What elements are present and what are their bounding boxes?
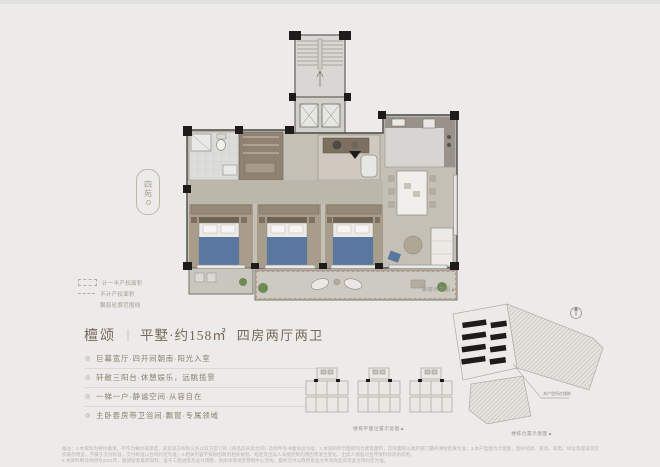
area-legend: 计一半产权面积 不计产权面积 飘窗轮廓范围线 [78,278,198,311]
key-plans-caption: 楼栋平面位置示意图▲ [303,425,455,432]
feature-item: ◎ 巨幕宽厅·四开间朝南·阳光入室 [85,350,323,369]
bathroom-1 [189,132,239,180]
unit-title: 檀颂 ｜ 平墅·约158㎡ 四房两厅两卫 [84,324,324,345]
key-plans: 楼栋平面位置示意图▲ [303,366,455,432]
feature-text: 轩敞三阳台·休憩娱乐，远眺揽景 [96,372,216,383]
bullet-icon: ◎ [85,412,91,419]
disclaimer: 备注：1.本资料为要约邀请，不作为要约或承诺，买卖双方权利义务以双方签订的《商品… [62,446,599,464]
disclaimer-line-1: 备注：1.本资料为要约邀请，不作为要约或承诺，买卖双方权利义务以双方签订的《商品… [62,446,599,458]
bedroom-2 [257,204,321,268]
north-arrow-icon [571,307,582,319]
floorplan [125,25,465,315]
legend-row-no-area: 不计产权面积 [78,289,198,298]
stair-tower [289,31,351,97]
bullet-icon: ◎ [85,393,91,400]
title-divider: ｜ [122,327,134,344]
feature-item: ◎ 主卧套房带卫浴间·飘窗·专属领域 [85,407,323,425]
balcony-main [255,270,457,300]
feature-list: ◎ 巨幕宽厅·四开间朝南·阳光入室 ◎ 轩敞三阳台·休憩娱乐，远眺揽景 ◎ 一梯… [85,350,323,425]
project-seal: 四 苑 [136,169,160,215]
feature-item: ◎ 一梯一户·静谧空间·从容自在 [85,388,323,407]
dashed-line-symbol [78,293,95,294]
key-plan-building-2 [358,368,400,412]
walkin-closet [239,132,283,180]
bullet-icon: ◎ [85,374,91,381]
corridor [189,180,383,204]
bathroom-2 [318,135,380,180]
bullet-icon: ◎ [85,355,91,362]
seal-char-1: 四 [144,180,152,189]
unit-rooms: 四房两厅两卫 [237,325,324,344]
feature-item: ◎ 轩敞三阳台·休憩娱乐，远眺揽景 [85,369,323,388]
feature-text: 巨幕宽厅·四开间朝南·阳光入室 [96,353,211,364]
site-plan-drawing: 本户型所在楼栋 [443,302,621,424]
legend-row-baywindow: 飘窗轮廓范围线 [78,300,198,309]
bedroom-3 [325,204,383,268]
feature-text: 主卧套房带卫浴间·飘窗·专属领域 [96,410,219,421]
page-top-edge [0,0,660,4]
site-plan: 本户型所在楼栋 楼栋位置示意图▲ [443,302,621,437]
legend-label: 计一半产权面积 [102,279,143,287]
elevator-core [289,93,351,139]
seal-flower-mark [146,200,151,205]
project-name: 檀颂 [84,325,116,345]
legend-label: 飘窗轮廓范围线 [100,301,141,309]
legend-label: 不计产权面积 [100,290,135,298]
seal-char-2: 苑 [144,189,152,198]
dashed-box-symbol [78,279,97,286]
parcel-this-unit [453,304,517,380]
key-plan-building-1 [306,368,348,412]
balcony-left [189,268,253,294]
site-plan-caption: 楼栋位置示意图▲ [467,430,597,437]
key-plans-drawing [303,366,455,418]
balcony-note: 飘窗示意图▲ [422,286,456,293]
legend-row-half-area: 计一半产权面积 [78,278,198,287]
bedroom-1 [189,204,253,268]
floorplan-drawing [125,25,465,315]
kitchen [385,117,455,167]
feature-text: 一梯一户·静谧空间·从容自在 [96,391,202,402]
parcel-lowrise-south [469,376,531,424]
disclaimer-line-2: 5.本资料制作时间为2021年，敬请留意最新资料；鉴于工程进度及设计调整，具体详… [62,458,599,464]
leader-label: 本户型所在楼栋 [543,390,571,396]
unit-spec: 平墅·约158㎡ [140,324,227,344]
